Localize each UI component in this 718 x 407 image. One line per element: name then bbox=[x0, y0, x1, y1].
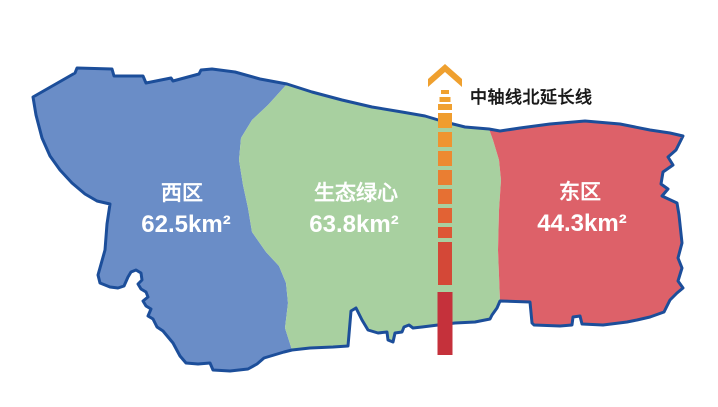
east-district-area: 44.3km² bbox=[537, 210, 626, 237]
green-heart-area: 63.8km² bbox=[309, 211, 398, 238]
axis-dash bbox=[438, 189, 452, 204]
axis-dash bbox=[438, 104, 452, 110]
east-district-name: 东区 bbox=[559, 180, 601, 204]
axis-dash bbox=[438, 227, 452, 238]
axis-dash bbox=[438, 170, 452, 185]
axis-dash bbox=[438, 113, 452, 128]
axis-dash bbox=[438, 242, 452, 285]
north-arrow-icon bbox=[428, 64, 462, 87]
district-map: 中轴线北延长线 西区 62.5km² 生态绿心 63.8km² 东区 44.3k… bbox=[0, 0, 718, 407]
axis-label: 中轴线北延长线 bbox=[470, 87, 593, 107]
green-heart-name: 生态绿心 bbox=[314, 181, 398, 205]
axis-dash bbox=[438, 208, 452, 223]
axis-dash bbox=[438, 292, 453, 355]
west-district-name: 西区 bbox=[161, 182, 203, 205]
district-map-infographic: 中轴线北延长线 西区 62.5km² 生态绿心 63.8km² 东区 44.3k… bbox=[0, 0, 718, 407]
west-district-area: 62.5km² bbox=[141, 211, 230, 238]
axis-dash bbox=[440, 97, 451, 102]
axis-dash bbox=[438, 132, 452, 147]
axis-dash bbox=[441, 90, 449, 94]
axis-dash bbox=[438, 151, 452, 166]
